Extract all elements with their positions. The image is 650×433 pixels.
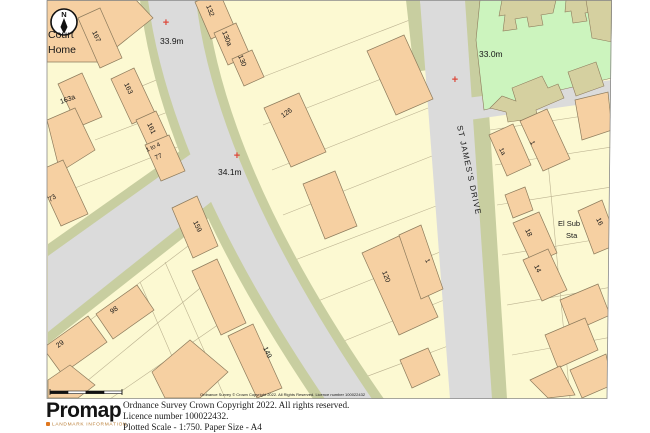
footer-bar: Promap LANDMARK INFORMATION Ordnance Sur… [0, 399, 650, 433]
north-letter: N [61, 10, 66, 19]
landmark-dot-icon [46, 422, 50, 426]
promap-logo: Promap LANDMARK INFORMATION [46, 400, 127, 427]
map-label: 33.0m [479, 49, 503, 59]
map-label: Ordnance Survey © Crown Copyright 2022. … [200, 392, 366, 397]
copyright-line2: Licence number 100022432. [123, 411, 349, 422]
copyright-line1: Ordnance Survey Crown Copyright 2022. Al… [123, 400, 349, 411]
landmark-subtext: LANDMARK INFORMATION [46, 422, 127, 427]
map-label: El Sub [558, 219, 580, 228]
map-canvas: N CourtHome167163a1631611 to 47773982913… [0, 0, 650, 399]
promap-logo-text: Promap [46, 400, 127, 422]
spot-height-cross: + [163, 17, 169, 29]
landmark-label: LANDMARK INFORMATION [52, 422, 127, 427]
copyright-block: Ordnance Survey Crown Copyright 2022. Al… [123, 400, 349, 432]
spot-height-cross: + [234, 150, 240, 162]
map-label: 33.9m [160, 36, 184, 46]
os-map-svg: N CourtHome167163a1631611 to 47773982913… [0, 0, 650, 399]
map-label: Sta [566, 231, 578, 240]
copyright-line3: Plotted Scale - 1:750. Paper Size - A4 [123, 422, 349, 433]
map-label: Home [48, 44, 76, 56]
spot-height-cross: + [452, 74, 458, 86]
map-label: Court [48, 29, 74, 41]
map-label: 34.1m [218, 167, 242, 177]
